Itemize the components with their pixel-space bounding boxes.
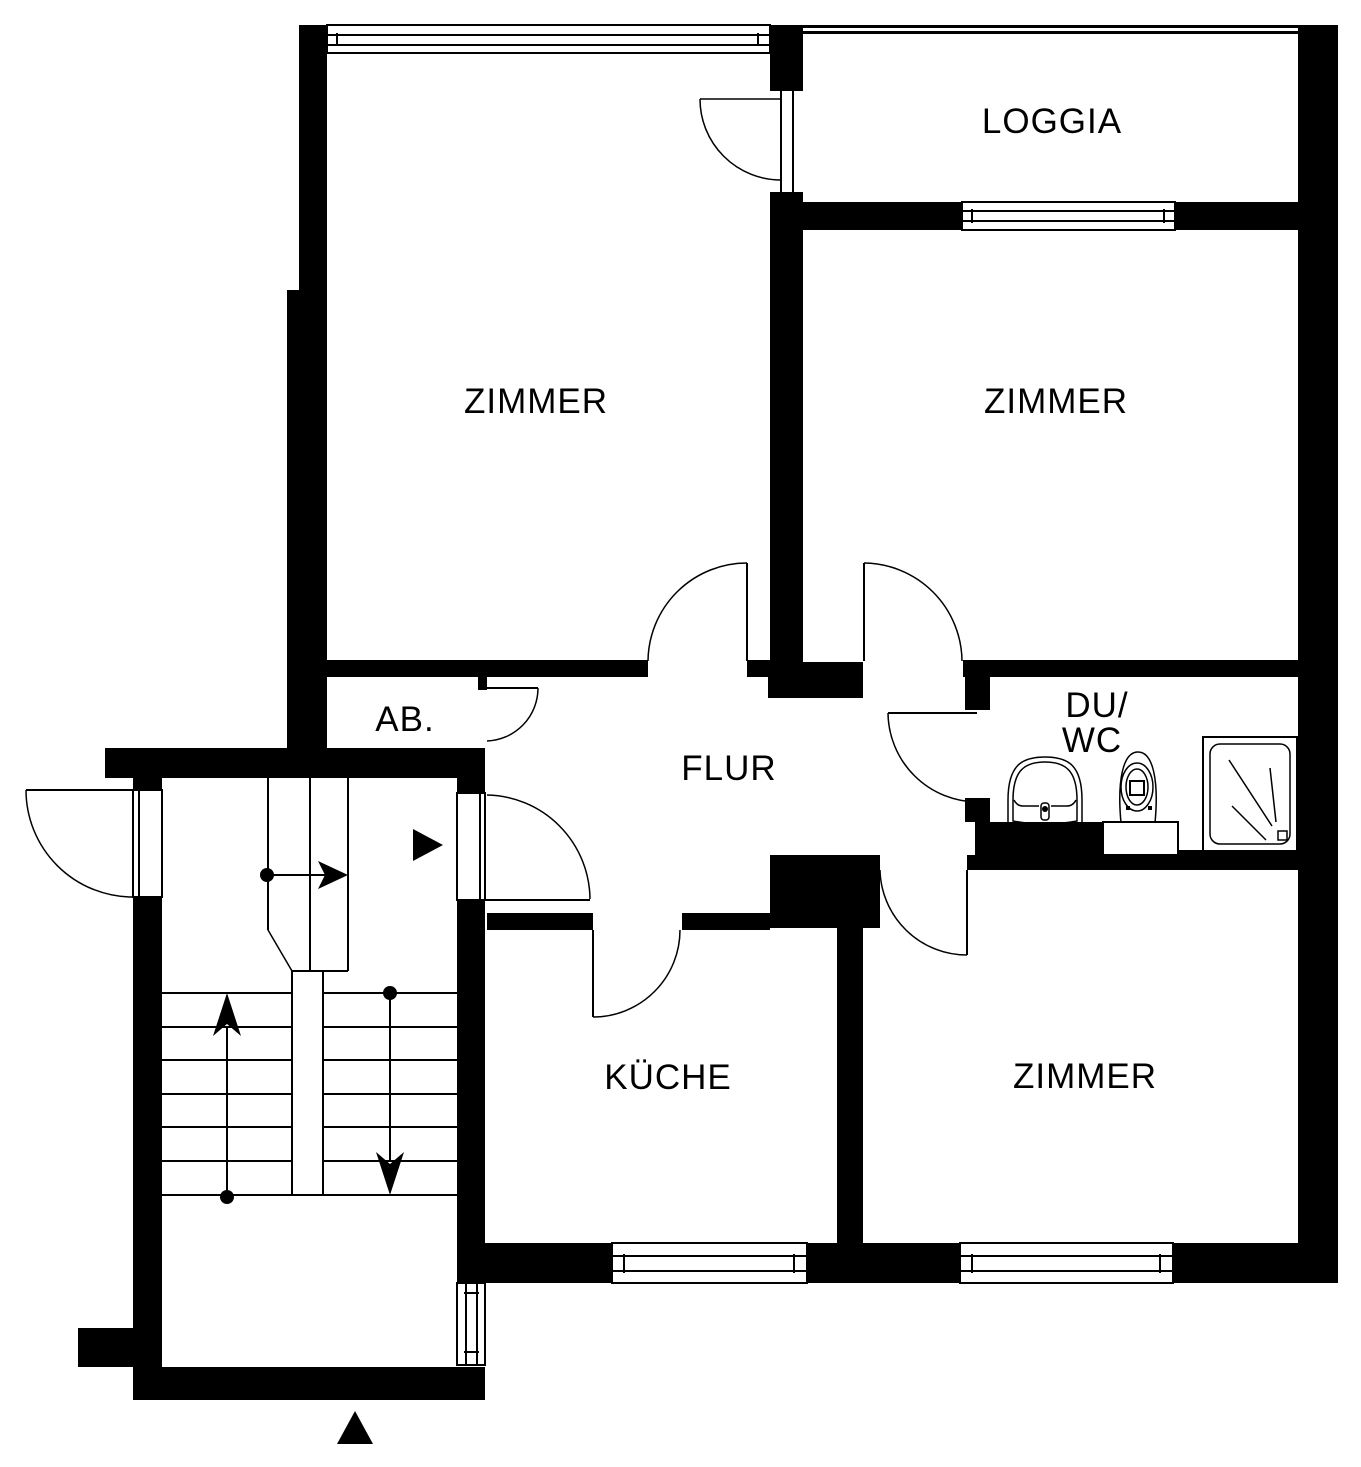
room-label-kitchen: KÜCHE xyxy=(604,1058,732,1097)
shower-icon xyxy=(1203,737,1297,851)
toilet-platform xyxy=(1103,822,1178,855)
floor-plan: ZIMMER ZIMMER LOGGIA AB. FLUR DU/ WC KÜC… xyxy=(0,0,1361,1467)
room-label-loggia: LOGGIA xyxy=(982,102,1122,141)
window-kitchen xyxy=(612,1243,807,1283)
room-label-du-wc-line2: WC xyxy=(1062,721,1122,760)
floor-plan-page: ZIMMER ZIMMER LOGGIA AB. FLUR DU/ WC KÜC… xyxy=(0,0,1361,1467)
room-label-flur: FLUR xyxy=(681,749,776,788)
window-loggia-zimmer xyxy=(962,202,1175,230)
window-stairwell-side xyxy=(457,1283,485,1365)
room-label-zimmer-top-left: ZIMMER xyxy=(464,382,608,421)
room-label-storage: AB. xyxy=(375,700,434,739)
window-zimmer-bottom-right xyxy=(960,1243,1173,1283)
room-label-zimmer-bottom-right: ZIMMER xyxy=(1013,1057,1157,1096)
window-zimmer-top-left xyxy=(327,25,770,53)
room-label-du-wc-line1: DU/ xyxy=(1065,686,1128,725)
room-label-zimmer-top-right: ZIMMER xyxy=(984,382,1128,421)
